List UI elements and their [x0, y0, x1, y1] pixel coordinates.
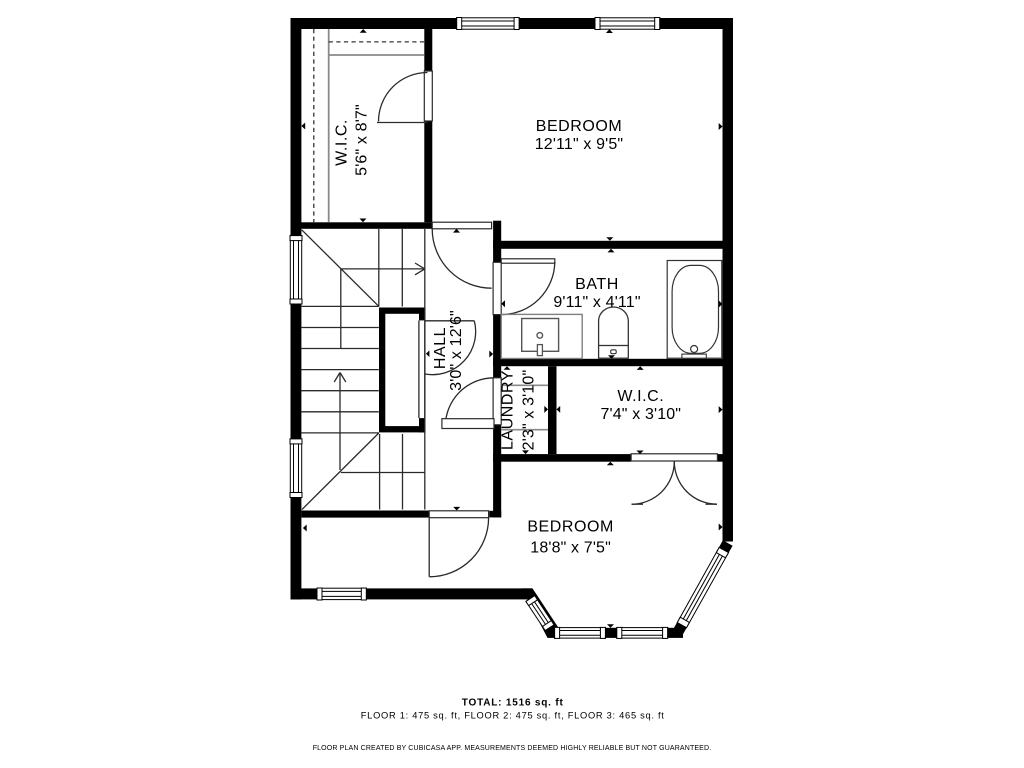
- svg-text:2'3" x 3'10": 2'3" x 3'10": [520, 370, 537, 451]
- svg-text:BATH: BATH: [575, 276, 619, 293]
- svg-text:12'11" x 9'5": 12'11" x 9'5": [535, 136, 624, 153]
- svg-text:5'6" x 8'7": 5'6" x 8'7": [353, 104, 370, 176]
- svg-text:HALL: HALL: [432, 327, 449, 369]
- svg-text:BEDROOM: BEDROOM: [536, 118, 623, 135]
- svg-text:W.I.C.: W.I.C.: [333, 119, 350, 166]
- svg-text:W.I.C.: W.I.C.: [617, 388, 664, 405]
- svg-text:18'8" x 7'5": 18'8" x 7'5": [530, 540, 611, 557]
- svg-text:BEDROOM: BEDROOM: [527, 519, 614, 536]
- svg-text:9'11" x 4'11": 9'11" x 4'11": [553, 294, 640, 311]
- svg-text:TOTAL: 1516 sq. ft: TOTAL: 1516 sq. ft: [462, 698, 564, 709]
- svg-text:LAUNDRY: LAUNDRY: [499, 370, 516, 450]
- svg-text:3'0" x 12'6": 3'0" x 12'6": [448, 310, 465, 391]
- svg-text:FLOOR PLAN CREATED BY CUBICASA: FLOOR PLAN CREATED BY CUBICASA APP. MEAS…: [313, 745, 712, 752]
- svg-text:FLOOR 1: 475 sq. ft, FLOOR 2:: FLOOR 1: 475 sq. ft, FLOOR 2: 475 sq. ft…: [361, 711, 665, 721]
- svg-text:7'4" x 3'10": 7'4" x 3'10": [600, 406, 681, 423]
